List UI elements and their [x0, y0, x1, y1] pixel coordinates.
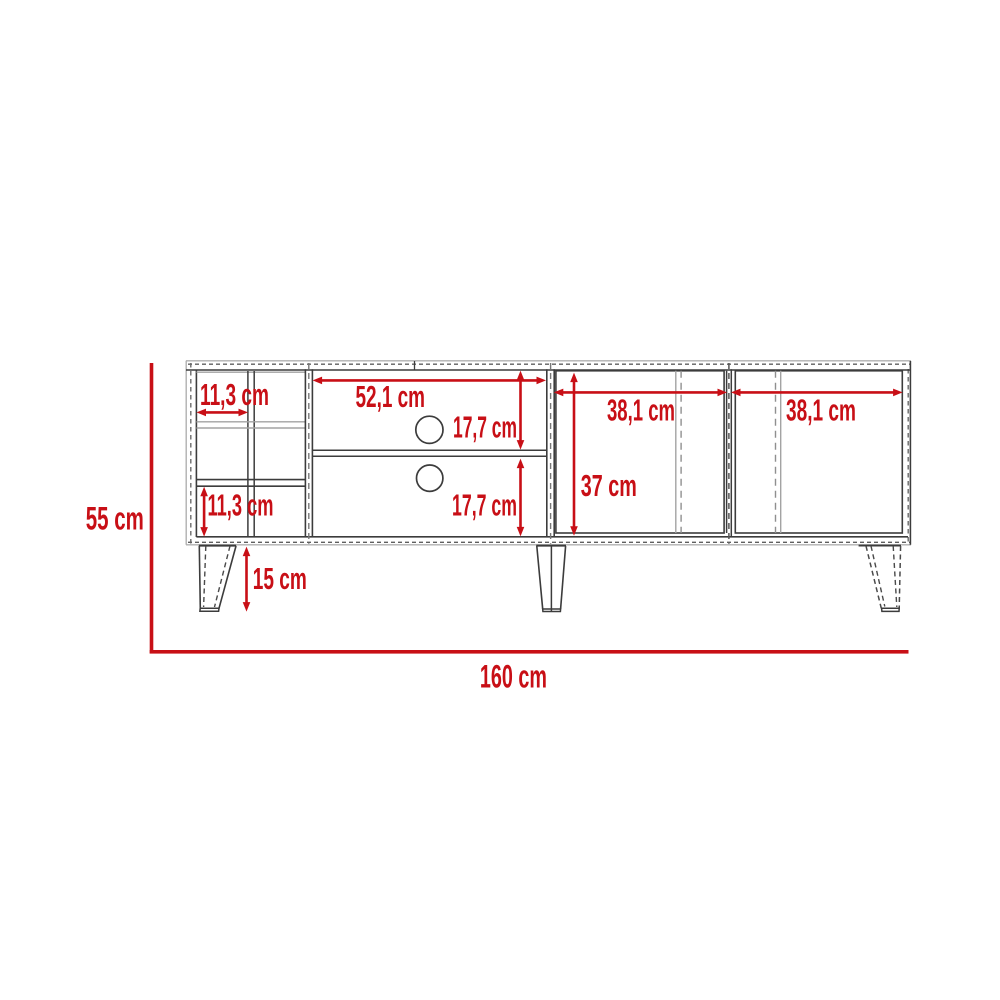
svg-text:38,1 cm: 38,1 cm — [786, 393, 856, 428]
svg-text:11,3 cm: 11,3 cm — [200, 377, 269, 412]
svg-text:17,7 cm: 17,7 cm — [452, 488, 517, 523]
svg-text:160 cm: 160 cm — [480, 658, 547, 694]
svg-text:55 cm: 55 cm — [86, 501, 144, 537]
svg-text:38,1 cm: 38,1 cm — [607, 393, 675, 428]
svg-text:52,1 cm: 52,1 cm — [356, 379, 426, 414]
svg-text:15 cm: 15 cm — [253, 561, 307, 596]
svg-text:17,7 cm: 17,7 cm — [453, 410, 517, 445]
svg-text:11,3 cm: 11,3 cm — [208, 488, 274, 523]
svg-text:37 cm: 37 cm — [581, 468, 637, 503]
